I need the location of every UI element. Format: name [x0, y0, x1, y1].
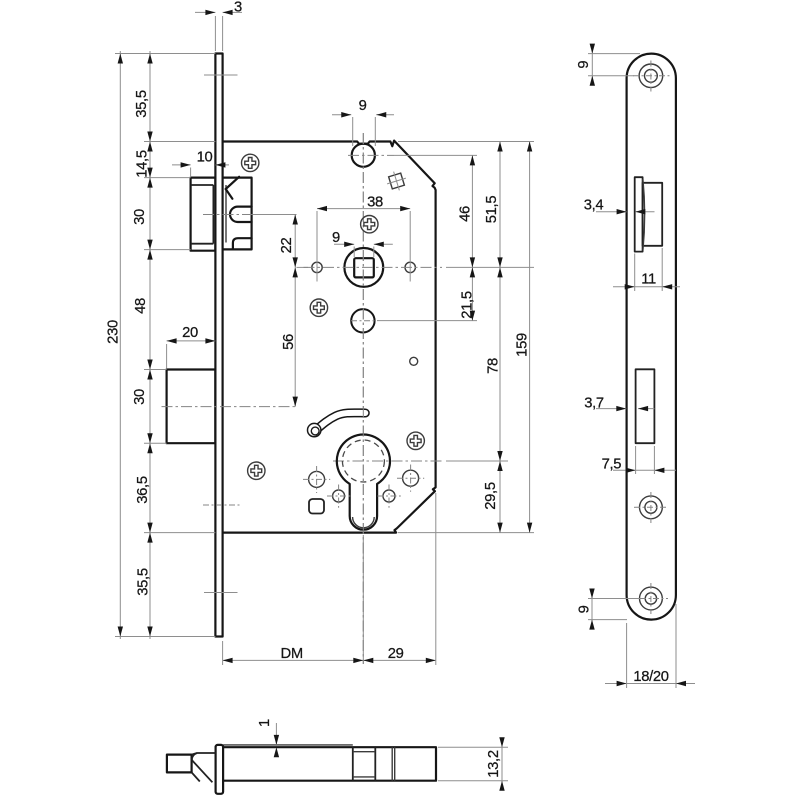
svg-text:35,5: 35,5	[134, 90, 150, 118]
svg-text:9: 9	[576, 61, 592, 69]
svg-text:56: 56	[281, 334, 297, 350]
svg-text:14,5: 14,5	[135, 150, 151, 178]
svg-text:35,5: 35,5	[136, 568, 152, 596]
svg-text:1: 1	[257, 719, 273, 727]
svg-text:10: 10	[197, 150, 213, 166]
svg-text:78: 78	[486, 358, 502, 374]
svg-text:30: 30	[132, 389, 148, 405]
svg-text:36,5: 36,5	[135, 476, 151, 504]
svg-text:51,5: 51,5	[484, 196, 500, 224]
svg-text:9: 9	[577, 605, 593, 613]
svg-text:18/20: 18/20	[633, 669, 668, 685]
svg-text:3: 3	[234, 0, 242, 16]
svg-text:30: 30	[132, 209, 148, 225]
svg-text:3,7: 3,7	[584, 396, 604, 412]
svg-text:29,5: 29,5	[483, 482, 499, 510]
svg-text:7,5: 7,5	[602, 456, 622, 472]
svg-text:46: 46	[458, 206, 474, 222]
svg-text:13,2: 13,2	[486, 750, 502, 778]
svg-text:DM: DM	[281, 646, 303, 662]
svg-text:29: 29	[388, 646, 404, 662]
svg-text:230: 230	[106, 320, 122, 344]
svg-text:21,5: 21,5	[460, 291, 476, 319]
svg-text:11: 11	[641, 271, 656, 287]
svg-text:22: 22	[279, 238, 295, 254]
svg-text:9: 9	[332, 230, 340, 246]
svg-text:9: 9	[359, 98, 367, 114]
svg-text:3,4: 3,4	[584, 198, 604, 214]
svg-text:159: 159	[515, 333, 531, 357]
svg-text:48: 48	[133, 298, 149, 314]
svg-text:38: 38	[367, 195, 383, 211]
svg-text:20: 20	[182, 325, 198, 341]
